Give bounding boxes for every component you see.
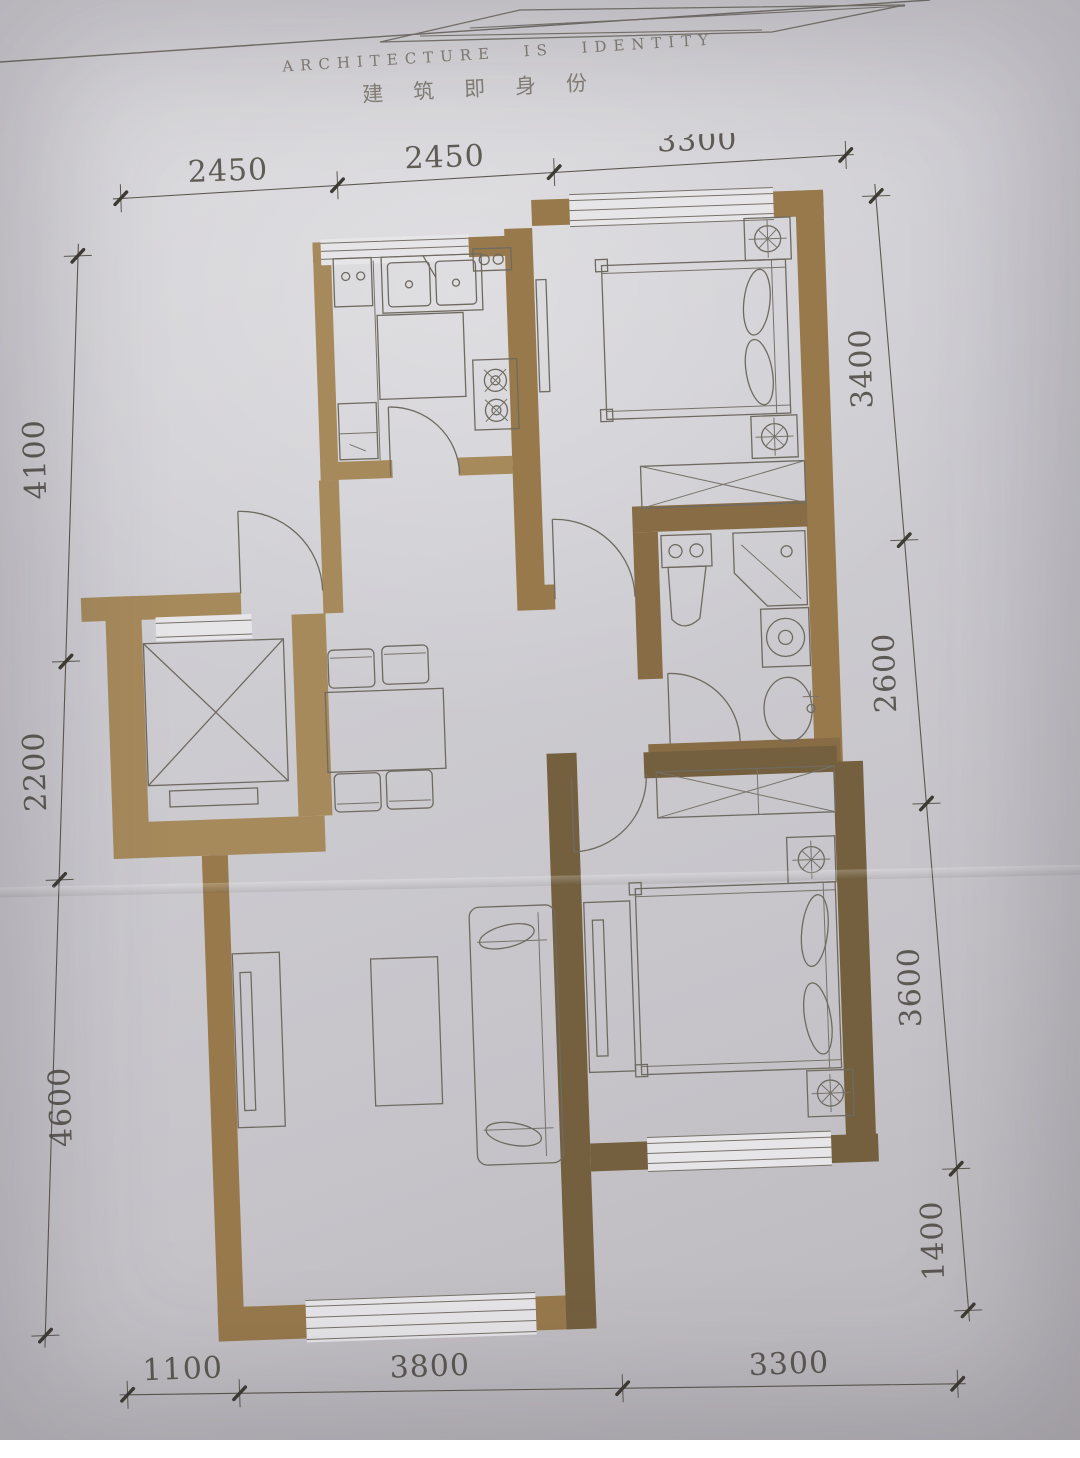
nightstand-lamp-icon bbox=[744, 217, 791, 261]
washing-machine-icon bbox=[761, 608, 811, 668]
entry-door bbox=[238, 509, 323, 594]
dim-top-1: 2450 bbox=[187, 152, 269, 190]
dim-right-4: 1400 bbox=[914, 1200, 952, 1282]
dresser-icon bbox=[536, 280, 550, 392]
dining-table-icon bbox=[325, 688, 446, 772]
laundry-basin-icon bbox=[338, 403, 378, 460]
kitchen bbox=[333, 248, 520, 462]
coffee-table-icon bbox=[371, 957, 443, 1106]
elevator-cross-icon bbox=[143, 639, 288, 786]
dining-chair-icon bbox=[334, 773, 381, 813]
dining-chair-icon bbox=[386, 770, 433, 810]
elevator-counterweight bbox=[170, 788, 259, 807]
bedroom-1 bbox=[534, 217, 806, 512]
dim-bottom-1: 1100 bbox=[142, 1350, 224, 1388]
kitchen-counter bbox=[377, 312, 466, 399]
cushion-icon bbox=[477, 919, 537, 954]
floor-plan-drawing: 2450 2450 3300 4100 2200 4600 3400 2600 … bbox=[0, 122, 1080, 1458]
dim-right-2: 2600 bbox=[866, 632, 904, 714]
walls bbox=[67, 189, 884, 1345]
bathroom-door bbox=[668, 671, 740, 743]
dim-bottom-2: 3800 bbox=[389, 1348, 471, 1386]
tv-cabinet-icon bbox=[584, 901, 636, 1073]
sofa-icon bbox=[469, 905, 564, 1166]
bedroom-2 bbox=[579, 765, 854, 1124]
dining-chair-icon bbox=[328, 649, 375, 689]
pillow-icon bbox=[798, 893, 831, 967]
double-bed-icon bbox=[629, 876, 842, 1077]
dim-bottom-3: 3300 bbox=[748, 1345, 830, 1383]
pillow-icon bbox=[741, 337, 778, 407]
pillow-icon bbox=[740, 268, 773, 336]
pillow-icon bbox=[799, 981, 837, 1056]
tv-cabinet-icon bbox=[232, 952, 285, 1128]
utility-sink-icon bbox=[333, 258, 373, 307]
toilet-icon bbox=[661, 534, 714, 627]
dining-set bbox=[324, 644, 448, 812]
photographed-floorplan-sheet: ARCHITECTURE IS IDENTITY 建筑即身份 bbox=[0, 0, 1080, 1440]
nightstand-lamp-icon bbox=[751, 415, 798, 459]
living-room-window bbox=[305, 1293, 536, 1343]
wardrobe-icon bbox=[641, 461, 806, 509]
dining-chair-icon bbox=[382, 645, 429, 685]
elevator bbox=[142, 613, 289, 808]
kitchen-door bbox=[388, 405, 459, 476]
double-kitchen-sink-icon bbox=[381, 254, 483, 313]
shower-icon bbox=[733, 531, 808, 607]
dim-top-2: 2450 bbox=[404, 139, 486, 177]
bedroom2-window bbox=[647, 1131, 832, 1171]
living-room bbox=[231, 905, 564, 1174]
wash-basin-icon bbox=[763, 676, 820, 742]
cushion-icon bbox=[484, 1118, 543, 1149]
dim-left-1: 4100 bbox=[17, 419, 55, 501]
bathroom bbox=[661, 530, 820, 745]
letterhead: ARCHITECTURE IS IDENTITY 建筑即身份 bbox=[0, 0, 1080, 140]
bedroom1-door bbox=[552, 517, 635, 600]
bedroom2-door bbox=[571, 774, 649, 852]
dim-left-3: 4600 bbox=[42, 1066, 80, 1148]
double-bed-icon bbox=[595, 253, 791, 422]
dimension-chain-left: 4100 2200 4600 bbox=[0, 243, 130, 1348]
bedroom1-window bbox=[569, 188, 774, 227]
dim-right-1: 3400 bbox=[843, 328, 881, 410]
dim-right-3: 3600 bbox=[891, 946, 929, 1028]
dim-left-2: 2200 bbox=[16, 731, 54, 813]
